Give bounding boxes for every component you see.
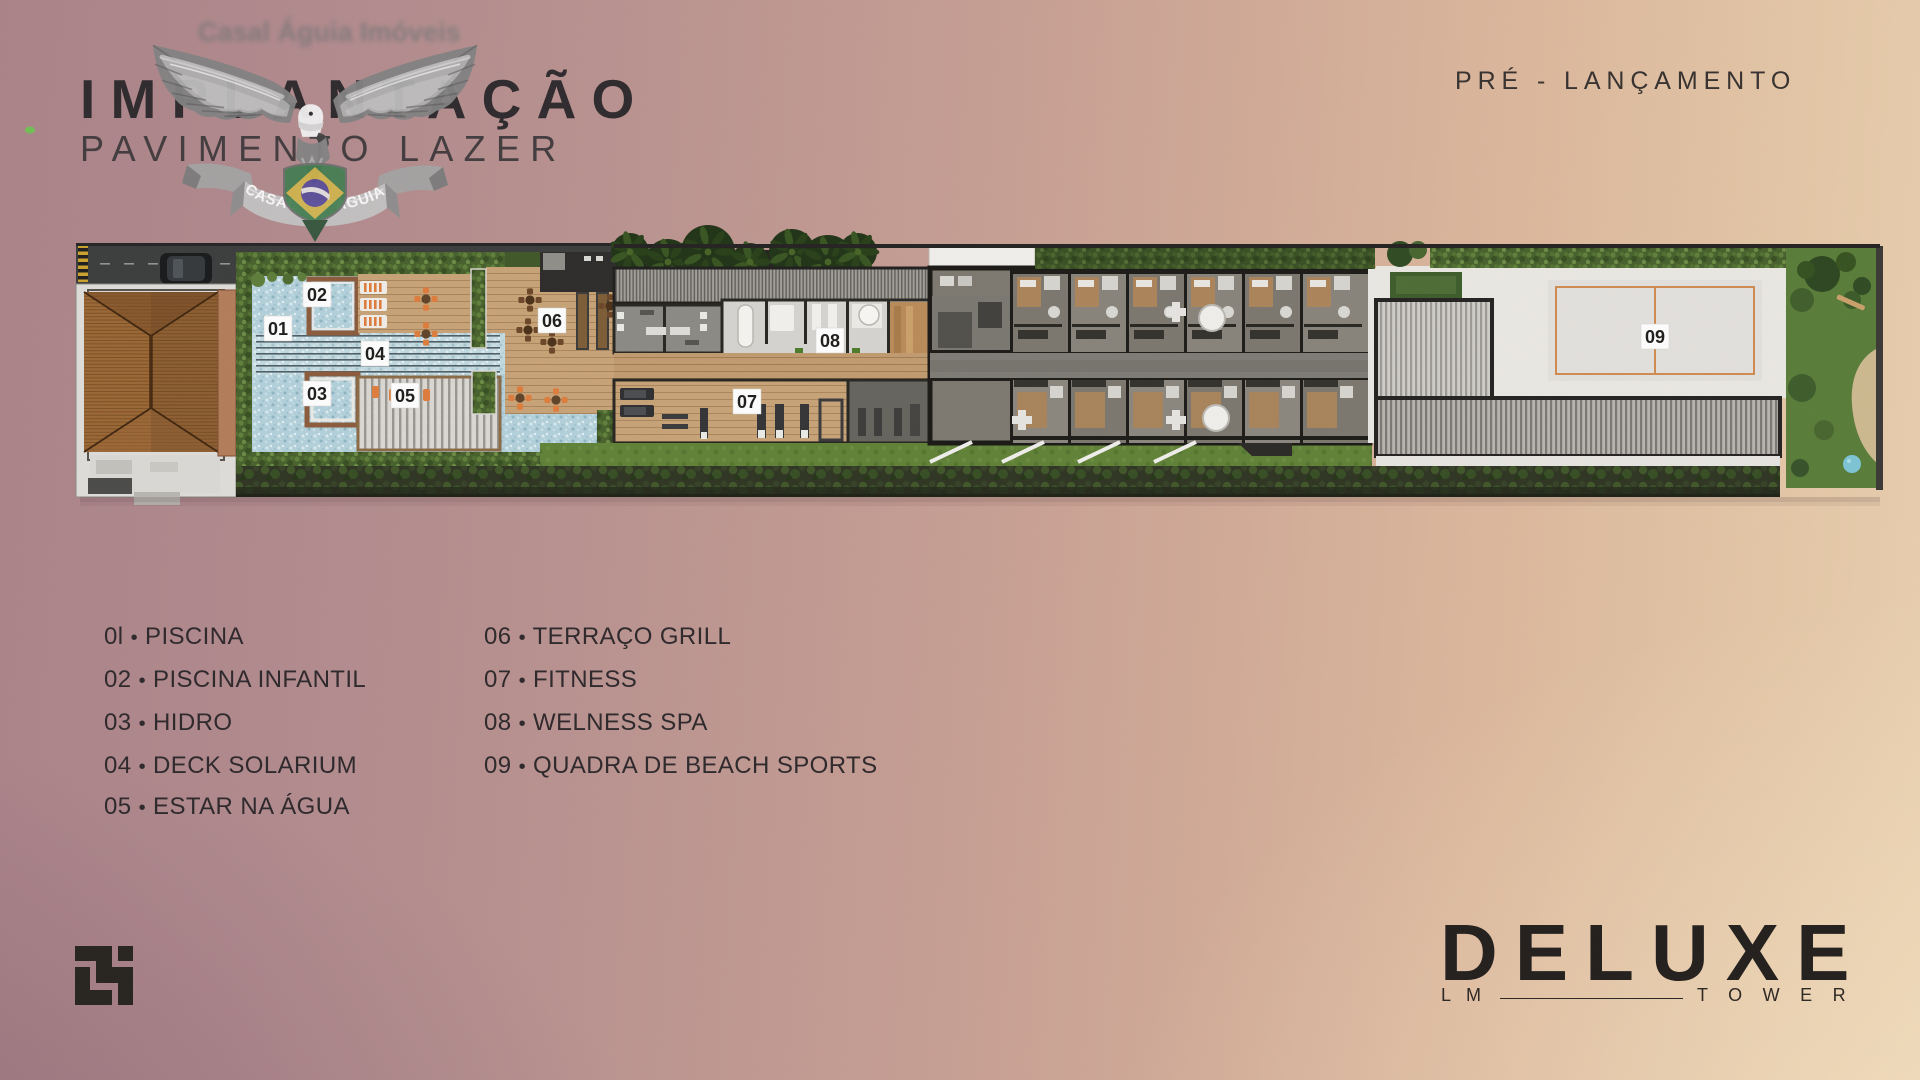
svg-text:09: 09 <box>1645 327 1665 347</box>
svg-text:05: 05 <box>395 386 415 406</box>
svg-text:07: 07 <box>737 392 757 412</box>
svg-text:08: 08 <box>820 331 840 351</box>
svg-text:04: 04 <box>365 344 385 364</box>
svg-text:03: 03 <box>307 384 327 404</box>
svg-text:01: 01 <box>268 319 288 339</box>
svg-text:06: 06 <box>542 311 562 331</box>
svg-text:02: 02 <box>307 285 327 305</box>
